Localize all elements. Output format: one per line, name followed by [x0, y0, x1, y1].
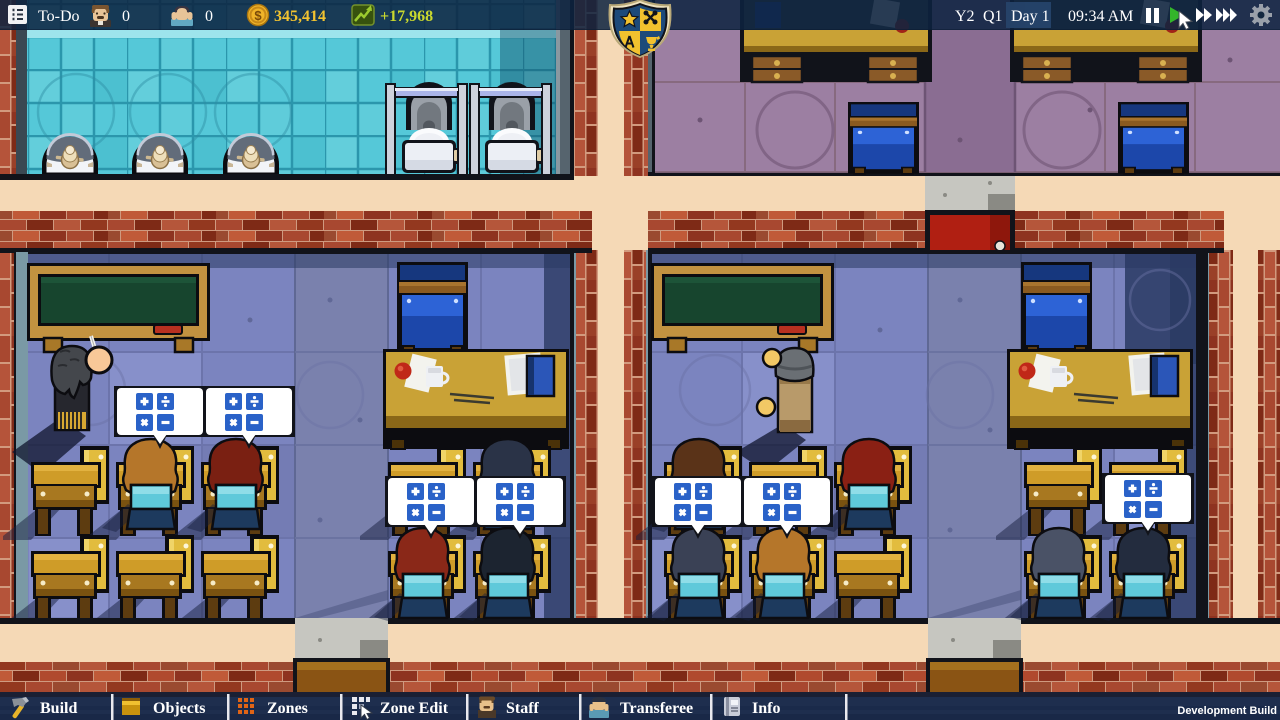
svg-text:Y2: Y2 — [955, 8, 975, 25]
svg-text:+17,968: +17,968 — [380, 8, 433, 25]
svg-text:Zones: Zones — [267, 700, 308, 717]
svg-text:0: 0 — [122, 8, 130, 25]
svg-text:Objects: Objects — [153, 700, 205, 717]
svg-text:Development Build: Development Build — [1177, 705, 1277, 717]
svg-text:Transferee: Transferee — [620, 700, 693, 717]
svg-text:09:34 AM: 09:34 AM — [1068, 8, 1133, 25]
svg-text:Q1: Q1 — [983, 8, 1003, 25]
svg-text:0: 0 — [205, 8, 213, 25]
svg-text:Info: Info — [752, 700, 780, 717]
svg-text:Day 1: Day 1 — [1011, 8, 1050, 25]
svg-text:Build: Build — [40, 700, 77, 717]
svg-text:To-Do: To-Do — [38, 8, 80, 25]
svg-text:345,414: 345,414 — [274, 8, 326, 25]
svg-text:Zone Edit: Zone Edit — [380, 700, 449, 717]
svg-text:Staff: Staff — [506, 700, 540, 717]
svg-text:$: $ — [254, 8, 262, 23]
